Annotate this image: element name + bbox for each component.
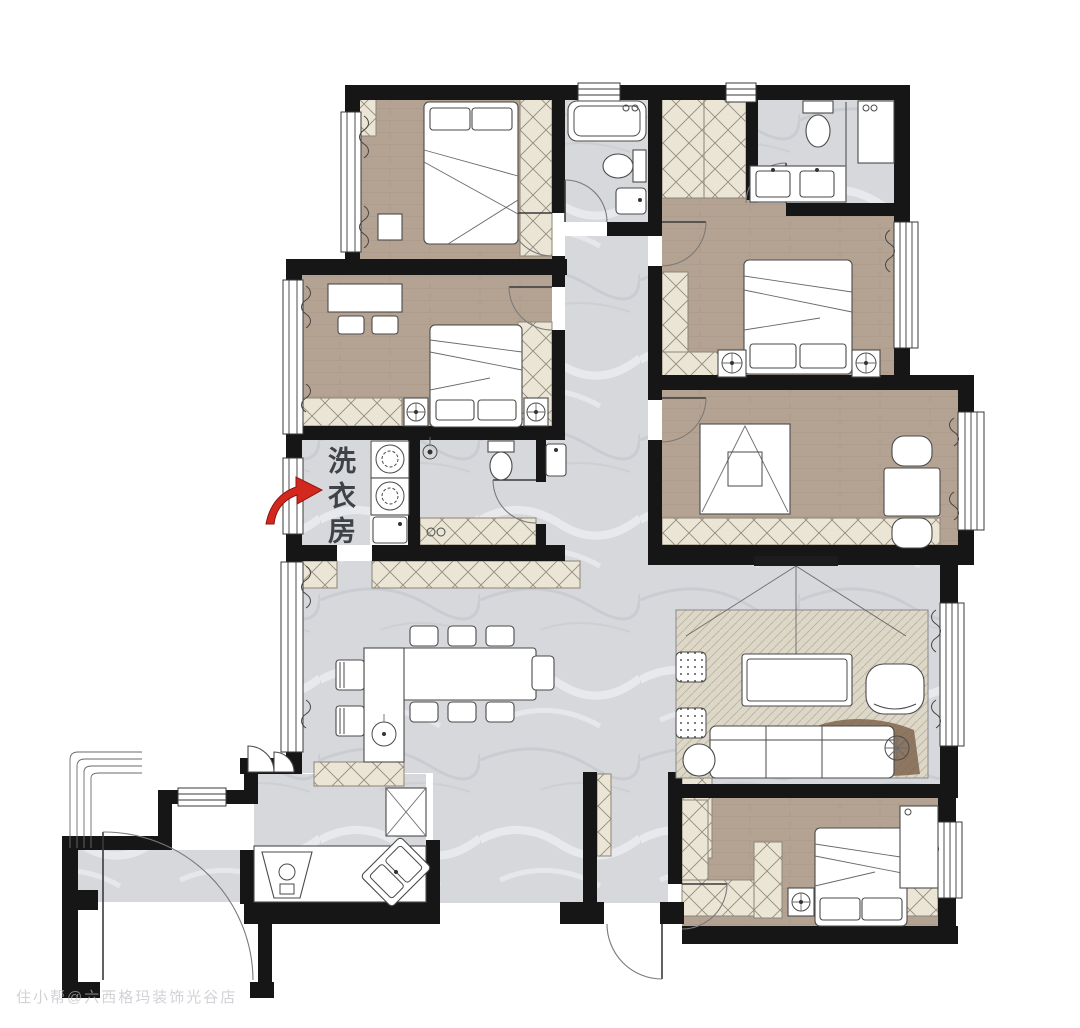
pillow-icon — [800, 344, 846, 368]
chair — [486, 702, 514, 722]
pillow-icon — [436, 400, 474, 420]
side-table — [683, 744, 715, 776]
wardrobe-icon — [662, 272, 688, 354]
corridor-floor — [565, 236, 648, 566]
curved-cabinet — [248, 746, 274, 772]
sofa — [710, 726, 894, 778]
porch-steps — [70, 752, 142, 848]
secondary-door — [607, 924, 662, 979]
dresser — [378, 214, 402, 240]
bay-window — [940, 603, 964, 746]
island-cabinet-icon — [314, 762, 404, 786]
bar-stool — [336, 706, 364, 736]
window — [726, 83, 756, 102]
chair — [448, 702, 476, 722]
pillow-icon — [820, 898, 860, 920]
lamp-icon — [792, 893, 810, 911]
window — [178, 788, 226, 806]
hall-cabinet-icon — [302, 561, 337, 588]
pouf — [676, 652, 706, 682]
walkway-floor — [433, 773, 583, 903]
pillow-icon — [478, 400, 516, 420]
fridge-icon — [386, 788, 426, 836]
toilet-icon — [803, 101, 833, 147]
toilet-icon — [488, 441, 514, 480]
coffee-table — [742, 654, 852, 706]
wardrobe-icon — [520, 98, 552, 256]
chair — [338, 316, 364, 334]
laundry-sink-icon — [373, 517, 407, 543]
pouf — [676, 708, 706, 738]
wardrobe-icon — [682, 800, 708, 880]
chair — [410, 626, 438, 646]
dryer-icon — [371, 478, 409, 515]
island-counter — [364, 648, 404, 762]
tall-cabinet — [900, 806, 938, 888]
pillow-icon — [430, 108, 470, 130]
pillow-icon — [472, 108, 512, 130]
dining-table — [402, 648, 536, 700]
window — [341, 112, 361, 252]
floor-plan-drawing — [0, 0, 1080, 1028]
lamp-icon — [722, 353, 742, 373]
wardrobe-icon — [302, 398, 402, 426]
wardrobe-icon — [662, 352, 718, 377]
bay-window — [958, 412, 984, 530]
bar-stool — [336, 660, 364, 690]
bathtub-icon — [568, 101, 646, 141]
hall-cabinet-icon — [372, 561, 580, 588]
chair — [532, 656, 554, 690]
chair — [892, 436, 932, 466]
bay-window — [938, 822, 962, 898]
chair — [448, 626, 476, 646]
lamp-icon — [527, 403, 545, 421]
window — [281, 562, 303, 752]
hall-cabinet-icon — [597, 774, 611, 856]
window — [578, 83, 620, 102]
drafting-desk — [700, 424, 790, 514]
chair — [892, 518, 932, 548]
floor-lamp-icon — [885, 736, 909, 760]
pillow-icon — [862, 898, 902, 920]
chair — [410, 702, 438, 722]
chair — [486, 626, 514, 646]
armchair — [866, 664, 924, 714]
washer-icon — [371, 441, 409, 478]
chair — [372, 316, 398, 334]
bay-window — [894, 222, 918, 348]
desk — [328, 284, 402, 312]
wardrobe-icon — [754, 842, 782, 918]
pillow-icon — [750, 344, 796, 368]
watermark: 住小帮@六西格玛装饰光谷店 — [16, 986, 237, 1007]
window — [283, 280, 303, 434]
laundry-room-label: 洗衣房 — [320, 446, 360, 551]
tea-table — [884, 468, 940, 516]
lamp-icon — [407, 403, 425, 421]
tv-icon — [754, 556, 838, 566]
floor-plan: 洗衣房 住小帮@六西格玛装饰光谷店 — [0, 0, 1080, 1028]
sink-icon — [756, 171, 790, 197]
sink-icon — [800, 171, 834, 197]
lamp-icon — [856, 353, 876, 373]
